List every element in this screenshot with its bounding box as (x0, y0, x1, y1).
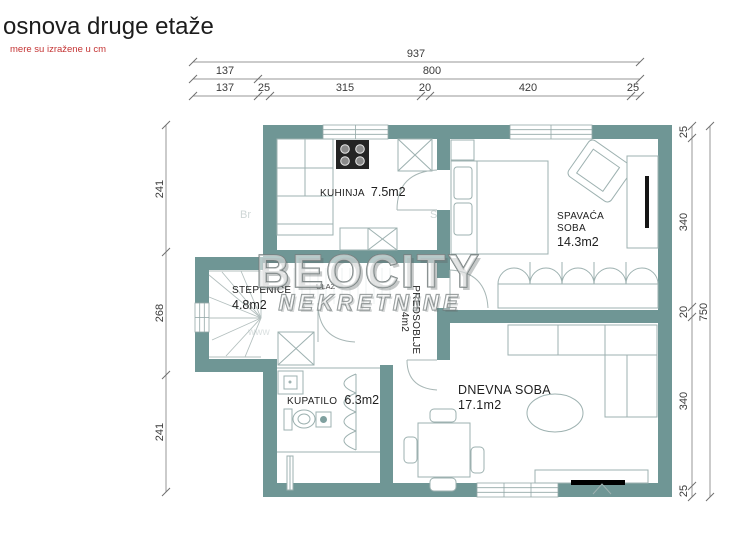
dim-top3-3: 20 (419, 82, 431, 94)
label-spavaca-line1: SPAVAĆA (557, 209, 604, 222)
dim-top2-1: 800 (423, 65, 441, 77)
bed (451, 140, 548, 254)
ghost-watermark-bottom: www (247, 327, 270, 338)
dim-right-3: 340 (678, 392, 690, 410)
dimensions-top: 937 137 800 137 25 315 20 420 25 (189, 48, 644, 100)
dim-left-2: 241 (154, 423, 166, 441)
washing-machine (316, 412, 331, 427)
label-spavaca-area: 14.3m2 (557, 235, 599, 249)
bathroom-fixtures (277, 332, 380, 490)
armchair (566, 138, 634, 204)
dining-table (404, 409, 484, 491)
dim-right-1: 340 (678, 213, 690, 231)
floor-plan-drawing: KUHINJA7.5m2 SPAVAĆA SOBA 14.3m2 STEPENI… (0, 0, 740, 550)
living-room-door (407, 360, 437, 390)
kitchen-counter (277, 139, 333, 235)
stove-icon (336, 140, 369, 169)
sink (278, 371, 303, 394)
dim-left-0: 241 (154, 180, 166, 198)
kitchen-window (323, 125, 388, 139)
ghost-watermark-mid: S (430, 209, 437, 221)
dim-top-total: 937 (407, 48, 425, 60)
dim-top3-4: 420 (519, 82, 537, 94)
wardrobe (627, 156, 658, 248)
hall-closet (278, 332, 314, 365)
dim-left-1: 268 (154, 304, 166, 322)
dimensions-right: 25 340 20 340 25 750 (678, 122, 714, 501)
label-dnevna: DNEVNA SOBA (458, 383, 551, 397)
floor-plan-image: osnova druge etaže mere su izražene u cm (0, 0, 740, 550)
label-spavaca-line2: SOBA (557, 223, 586, 234)
radiator (287, 456, 293, 490)
dim-top3-1: 25 (258, 82, 270, 94)
label-kupatilo: KUPATILO6.3m2 (287, 393, 379, 407)
kitchen-tall-cabinet (398, 139, 432, 171)
dim-right-2: 20 (678, 306, 690, 318)
dim-right-4: 25 (678, 485, 690, 497)
coffee-table (527, 394, 583, 432)
living-room-window (477, 483, 558, 497)
toilet (284, 409, 315, 430)
dim-right-total: 750 (698, 303, 710, 321)
dim-right-0: 25 (678, 126, 690, 138)
label-stepenice-area: 4.8m2 (232, 298, 267, 312)
staircase-window (195, 303, 209, 332)
stairs (209, 271, 261, 357)
ghost-watermark-left: Br (240, 209, 251, 221)
watermark-sub: NEKRETNINE (278, 290, 461, 315)
dim-top2-0: 137 (216, 65, 234, 77)
label-kuhinja: KUHINJA7.5m2 (320, 185, 406, 199)
closet-arched (498, 262, 658, 308)
dimensions-left: 241 268 241 (154, 121, 170, 496)
dim-top3-5: 25 (627, 82, 639, 94)
folding-door (344, 374, 356, 450)
label-dnevna-area: 17.1m2 (458, 398, 502, 412)
dim-top3-0: 137 (216, 82, 234, 94)
dim-top3-2: 315 (336, 82, 354, 94)
bedroom-window (510, 125, 592, 139)
